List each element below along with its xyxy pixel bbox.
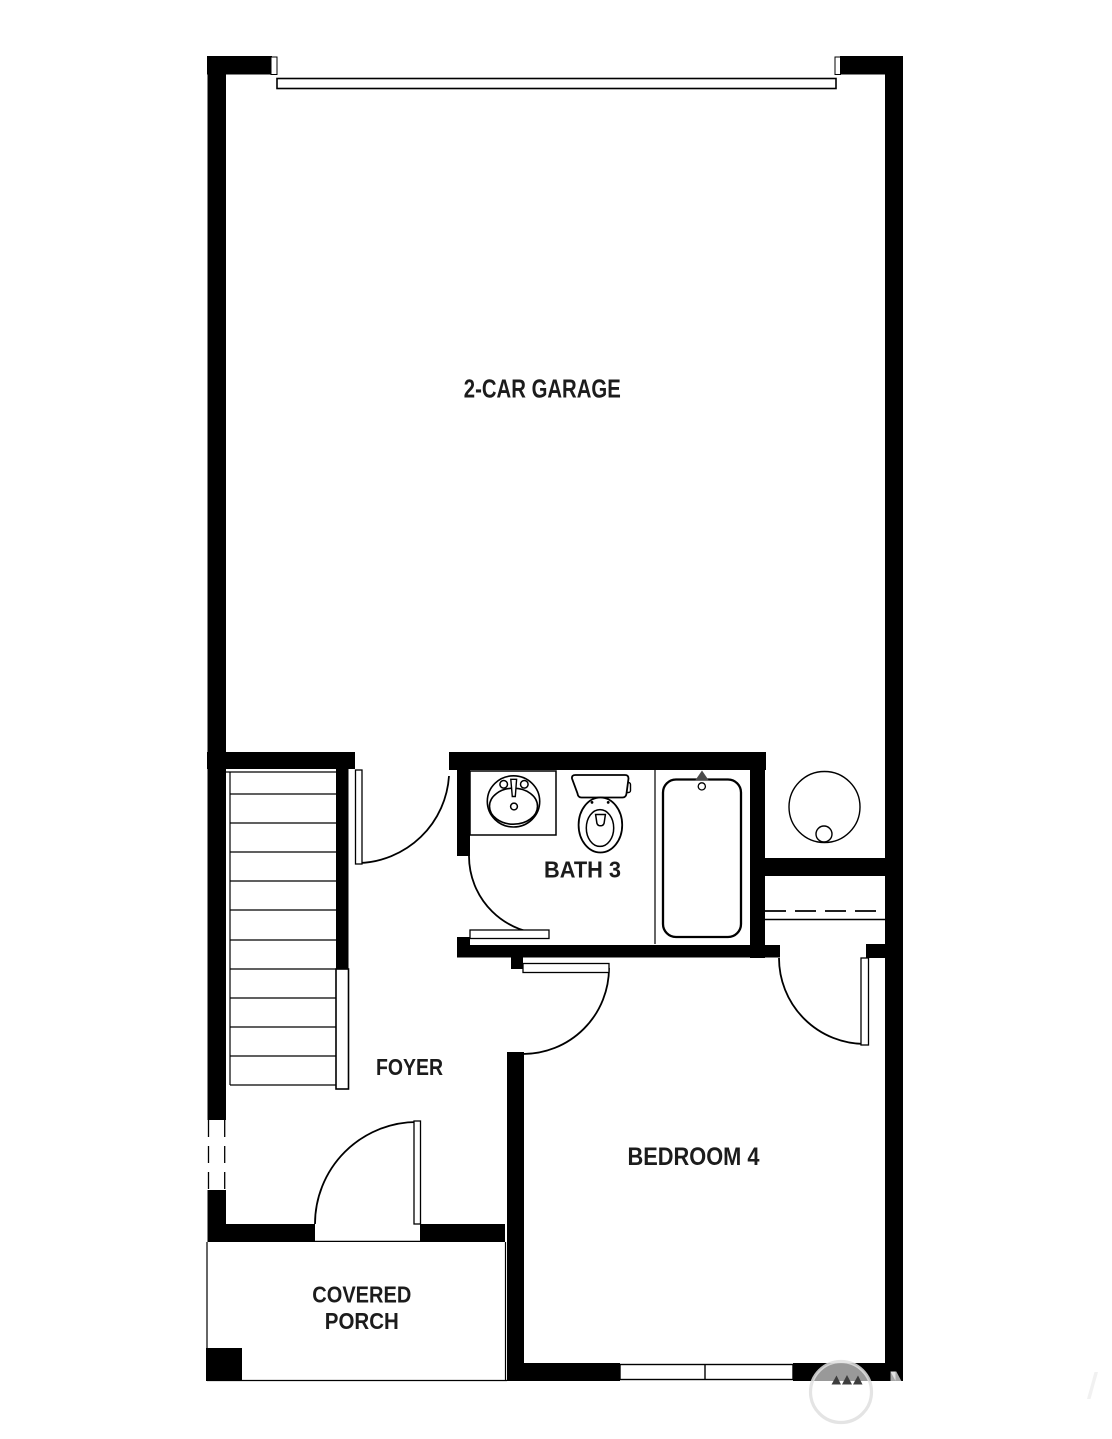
svg-text:2-CAR GARAGE: 2-CAR GARAGE xyxy=(464,374,621,404)
svg-text:BEDROOM 4: BEDROOM 4 xyxy=(628,1143,760,1171)
svg-text:BATH 3: BATH 3 xyxy=(544,856,621,882)
svg-text:PORCH: PORCH xyxy=(325,1308,399,1334)
svg-text:FOYER: FOYER xyxy=(376,1054,443,1080)
svg-text:COVERED: COVERED xyxy=(312,1281,411,1307)
